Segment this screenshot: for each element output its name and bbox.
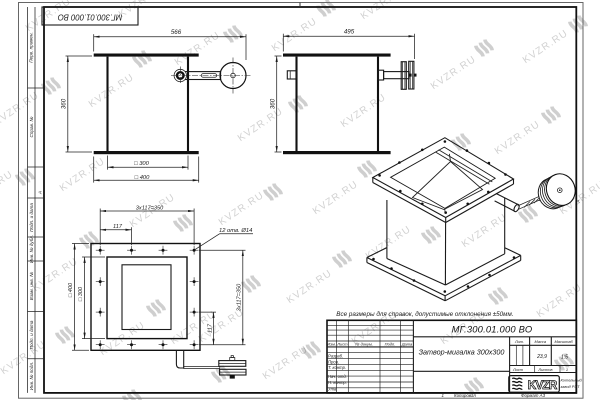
svg-text:Листов: Листов [537, 367, 552, 372]
svg-text:Инв. № подл.: Инв. № подл. [29, 362, 34, 391]
svg-text:А: А [576, 199, 581, 203]
svg-text:Справ. №: Справ. № [29, 117, 34, 138]
svg-text:Взам. инв. №: Взам. инв. № [29, 272, 34, 300]
svg-text:495: 495 [344, 29, 355, 36]
svg-text:Масштаб: Масштаб [555, 339, 574, 344]
svg-text:Лит.: Лит. [514, 339, 524, 344]
svg-text:23,9: 23,9 [536, 354, 547, 360]
svg-text:1: 1 [566, 367, 568, 372]
svg-text:Разраб.: Разраб. [328, 354, 343, 359]
svg-text:Подп.: Подп. [385, 342, 396, 347]
svg-text:117: 117 [207, 323, 213, 333]
svg-text:1:5: 1:5 [561, 355, 568, 361]
svg-text:Нач. отд.: Нач. отд. [328, 374, 347, 379]
svg-text:□ 300: □ 300 [134, 161, 150, 167]
svg-text:□ 400: □ 400 [135, 175, 151, 181]
svg-text:№ докум.: № докум. [355, 342, 373, 347]
svg-text:Утв.: Утв. [328, 386, 338, 391]
svg-text:Т. контр.: Т. контр. [328, 365, 346, 370]
svg-text:МГ.300.01.000 ВО: МГ.300.01.000 ВО [452, 324, 533, 335]
svg-text:Изм.: Изм. [327, 342, 336, 347]
svg-text:□ 300: □ 300 [78, 286, 84, 301]
svg-text:3x117=350: 3x117=350 [136, 205, 164, 211]
svg-text:□ 400: □ 400 [68, 282, 74, 297]
svg-text:Лист: Лист [512, 367, 524, 372]
svg-text:117: 117 [113, 224, 123, 230]
svg-text:Копировал: Копировал [454, 393, 476, 398]
svg-text:А: А [38, 191, 43, 195]
svg-text:12 отв. Ø14: 12 отв. Ø14 [219, 228, 252, 234]
svg-text:Н. контр.: Н. контр. [328, 380, 347, 385]
svg-text:Масса: Масса [535, 339, 547, 344]
svg-text:МГ.300.01.000 ВО: МГ.300.01.000 ВО [58, 12, 122, 21]
svg-text:завод РЭТ: завод РЭТ [560, 384, 581, 389]
svg-text:KVZR: KVZR [528, 378, 558, 392]
svg-text:360: 360 [60, 98, 67, 109]
svg-text:Формат А3: Формат А3 [521, 393, 546, 398]
svg-text:Инв. № дубл.: Инв. № дубл. [29, 235, 34, 263]
svg-text:Перв. примен.: Перв. примен. [29, 32, 34, 63]
svg-text:Лист: Лист [336, 342, 348, 347]
svg-text:360: 360 [269, 98, 276, 109]
svg-text:Все размеры для справок, допус: Все размеры для справок, допустимые откл… [336, 310, 513, 318]
svg-text:566: 566 [171, 29, 182, 36]
svg-text:Подп. и дата: Подп. и дата [29, 320, 34, 349]
svg-text:Котельный: Котельный [561, 378, 583, 383]
svg-text:3x117=350: 3x117=350 [236, 283, 242, 311]
svg-text:Пров.: Пров. [328, 359, 339, 364]
svg-text:Подп. и дата: Подп. и дата [29, 203, 34, 232]
svg-text:Затвор-мигалка 300х300: Затвор-мигалка 300х300 [419, 348, 505, 357]
svg-text:Дата: Дата [401, 342, 413, 347]
